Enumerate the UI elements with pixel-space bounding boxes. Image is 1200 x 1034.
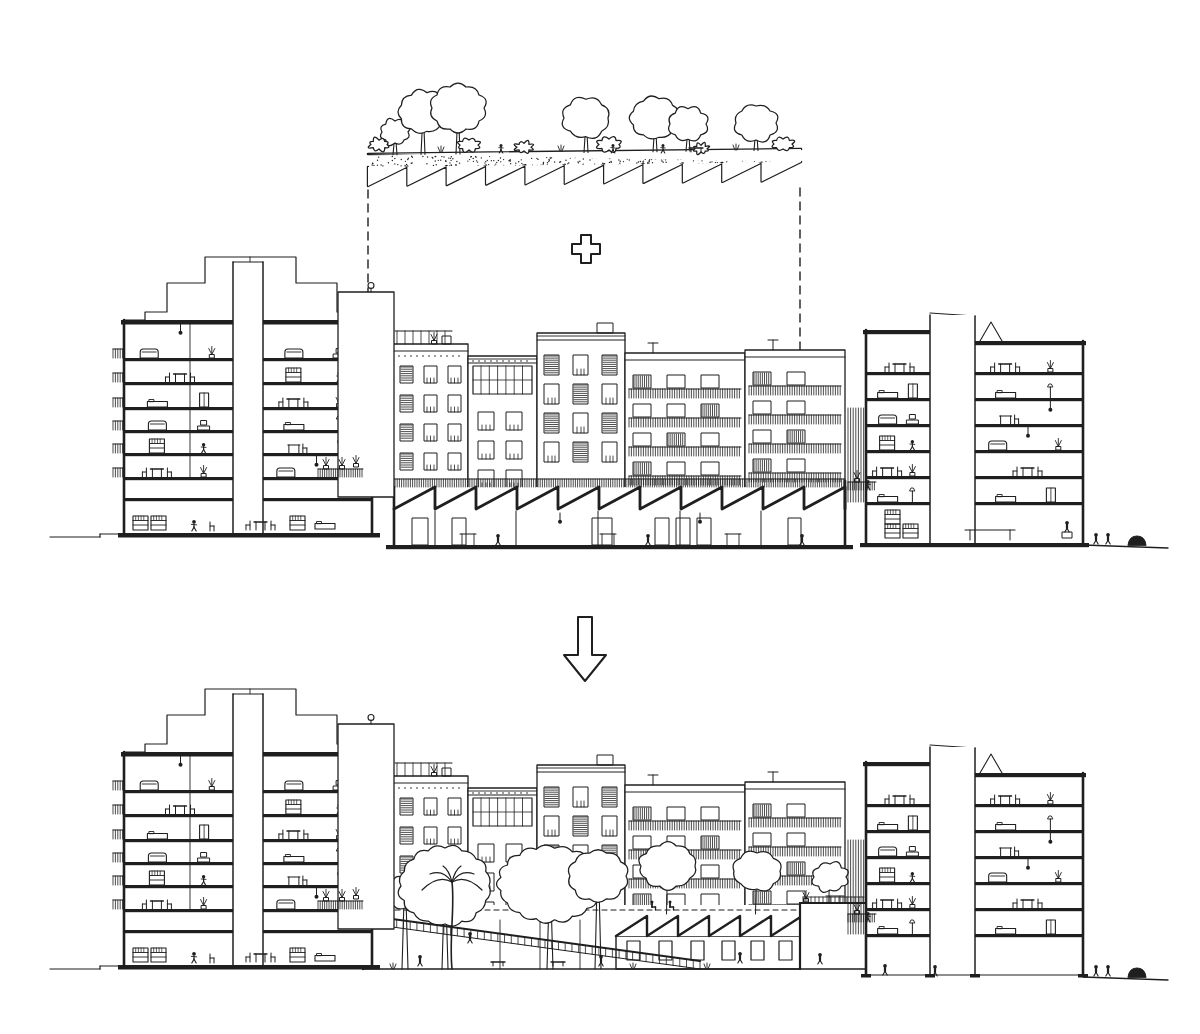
right-building-section bbox=[848, 313, 1168, 548]
arrow-down-icon bbox=[564, 617, 606, 681]
existing-block-section bbox=[50, 257, 1168, 549]
facade-building bbox=[468, 356, 537, 490]
architectural-transformation-diagram bbox=[0, 0, 1200, 1034]
courtyard-factory-section bbox=[384, 479, 853, 549]
balcony-railings bbox=[113, 781, 123, 909]
street-facades bbox=[393, 323, 845, 490]
street-ground-left bbox=[50, 966, 124, 969]
plus-icon bbox=[572, 235, 600, 263]
party-firewall bbox=[338, 724, 394, 929]
balcony-railings bbox=[113, 349, 123, 477]
wall-lamp-icon bbox=[368, 283, 374, 293]
facade-building bbox=[537, 323, 625, 490]
party-firewall bbox=[338, 292, 394, 497]
street-ground-right bbox=[1083, 965, 1168, 980]
facade-building bbox=[745, 340, 845, 490]
street-ground-left bbox=[50, 534, 124, 537]
left-building-section bbox=[50, 257, 394, 538]
facade-building bbox=[393, 331, 468, 490]
right-building-section bbox=[848, 745, 1168, 980]
street-ground-right bbox=[1083, 533, 1168, 548]
street-bush bbox=[1128, 536, 1146, 545]
wall-lamp-icon bbox=[368, 715, 374, 725]
transformed-block-section bbox=[50, 689, 1168, 980]
facade-building bbox=[625, 343, 745, 490]
diagram-svg bbox=[0, 0, 1200, 1034]
left-building-section bbox=[50, 689, 394, 970]
street-bush bbox=[1128, 968, 1146, 977]
roof-trees bbox=[368, 83, 794, 155]
